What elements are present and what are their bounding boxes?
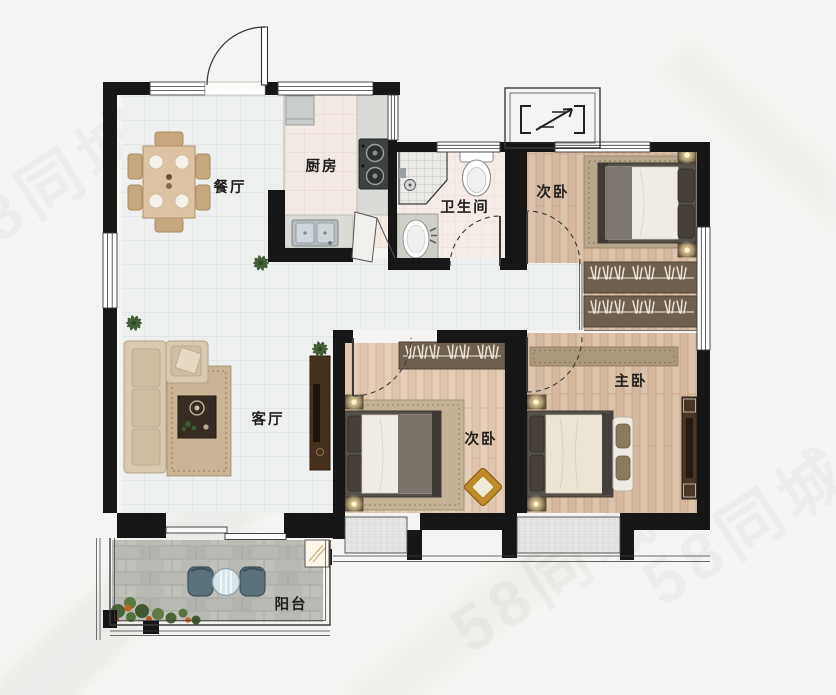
pillow bbox=[348, 455, 362, 491]
room-label-balcony: 阳台 bbox=[275, 595, 308, 613]
dining-chair bbox=[155, 218, 183, 232]
master-bed bbox=[527, 411, 633, 497]
room-label-bedroom-top: 次卧 bbox=[537, 183, 570, 201]
room-label-master: 主卧 bbox=[615, 372, 648, 390]
bay-window bbox=[345, 517, 407, 553]
tv-screen bbox=[686, 418, 693, 478]
window bbox=[278, 82, 373, 95]
master-runner-rug bbox=[530, 347, 678, 366]
dining-chair bbox=[155, 132, 183, 146]
pillow bbox=[530, 455, 544, 491]
pillow bbox=[678, 205, 694, 238]
dining-chair bbox=[196, 185, 210, 210]
door-leaf bbox=[262, 27, 268, 85]
room-label-kitchen: 厨房 bbox=[306, 157, 339, 175]
bathroom-sink bbox=[397, 214, 438, 264]
master-tv-console bbox=[682, 397, 697, 499]
window bbox=[103, 233, 117, 308]
closet-rows bbox=[580, 262, 698, 330]
wardrobe-mid bbox=[399, 342, 505, 369]
window bbox=[437, 142, 500, 152]
tv-screen bbox=[313, 384, 320, 442]
room-label-bathroom: 卫生间 bbox=[440, 198, 490, 216]
stove bbox=[359, 139, 389, 189]
blanket bbox=[606, 167, 632, 239]
bay-window bbox=[517, 517, 620, 553]
window bbox=[697, 227, 710, 350]
lamp-icon bbox=[527, 393, 546, 412]
bedroom-mid-bed bbox=[345, 411, 441, 497]
pillow bbox=[678, 169, 694, 202]
window bbox=[555, 142, 650, 152]
window bbox=[150, 82, 205, 95]
fridge bbox=[286, 96, 314, 125]
balcony-chair bbox=[188, 567, 213, 596]
dining-chair bbox=[128, 185, 142, 210]
window bbox=[388, 95, 398, 140]
bed-bench bbox=[613, 417, 633, 491]
lamp-icon bbox=[678, 241, 697, 260]
dining-chair bbox=[128, 154, 142, 179]
toilet bbox=[460, 149, 493, 196]
pillow bbox=[530, 416, 544, 452]
bedroom-top-furniture bbox=[584, 146, 697, 260]
table-decor bbox=[166, 174, 172, 180]
lamp-icon bbox=[527, 495, 546, 514]
dining-chair bbox=[196, 154, 210, 179]
room-label-living: 客厅 bbox=[251, 410, 285, 428]
room-label-bedroom-mid: 次卧 bbox=[465, 430, 498, 448]
pillow bbox=[348, 416, 362, 452]
blanket bbox=[398, 415, 434, 493]
coffee-table bbox=[178, 396, 216, 438]
tv-console bbox=[310, 356, 330, 470]
bedroom-top-bed bbox=[598, 163, 696, 243]
kitchen-sink bbox=[292, 220, 338, 246]
balcony-chair bbox=[240, 567, 265, 596]
floorplan-svg: 58同城 58同城 58同城 bbox=[0, 0, 836, 695]
balcony-table bbox=[213, 569, 240, 596]
wardrobe-row-top bbox=[584, 262, 697, 293]
wardrobe-row-bottom bbox=[584, 296, 697, 327]
floorplan-image: 58同城 58同城 58同城 bbox=[0, 0, 836, 695]
table-decor bbox=[166, 183, 172, 189]
lamp-icon bbox=[345, 495, 364, 514]
room-label-dining: 餐厅 bbox=[214, 178, 247, 196]
shower-valve bbox=[399, 168, 406, 178]
